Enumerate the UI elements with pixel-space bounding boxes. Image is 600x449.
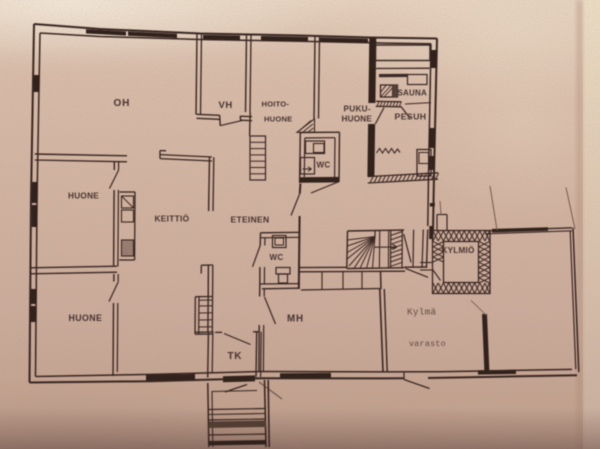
svg-text:MH: MH — [287, 314, 304, 325]
svg-text:PUKU-: PUKU- — [344, 105, 371, 114]
svg-text:KEITTIÖ: KEITTIÖ — [155, 214, 190, 224]
svg-text:OH: OH — [114, 98, 131, 109]
svg-text:WC: WC — [270, 253, 284, 262]
svg-text:TK: TK — [228, 351, 243, 362]
svg-text:Kylmä: Kylmä — [407, 307, 437, 318]
svg-text:HUONE: HUONE — [342, 115, 373, 124]
svg-text:VH: VH — [219, 100, 233, 111]
svg-text:KYLMIÖ: KYLMIÖ — [442, 245, 475, 255]
svg-text:HUONE: HUONE — [68, 192, 99, 201]
svg-text:ETEINEN: ETEINEN — [231, 215, 270, 225]
svg-text:PESUH: PESUH — [395, 112, 427, 122]
svg-text:HUONE: HUONE — [264, 115, 292, 124]
svg-text:SAUNA: SAUNA — [398, 89, 427, 98]
svg-text:varasto: varasto — [409, 340, 446, 349]
svg-text:HOITO-: HOITO- — [262, 100, 290, 109]
svg-text:HUONE: HUONE — [69, 313, 103, 323]
svg-text:WC: WC — [317, 161, 331, 170]
